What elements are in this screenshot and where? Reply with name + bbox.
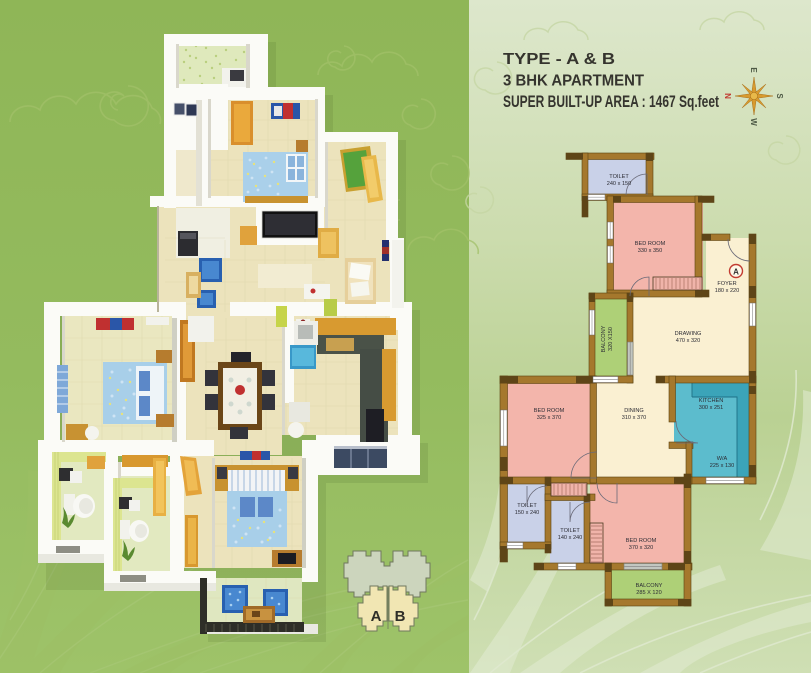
svg-text:FOYER: FOYER (717, 281, 736, 287)
svg-text:KITCHEN: KITCHEN (699, 398, 724, 404)
svg-text:DRAWING: DRAWING (675, 331, 702, 337)
svg-text:W/A: W/A (717, 456, 728, 462)
svg-text:N: N (723, 93, 732, 99)
svg-text:150 x 240: 150 x 240 (515, 510, 540, 516)
svg-text:W: W (749, 118, 758, 126)
svg-text:SUPER BUILT-UP AREA : 1467: SUPER BUILT-UP AREA : 1467 Sq.feet (503, 93, 719, 111)
svg-text:BED ROOM: BED ROOM (635, 241, 666, 247)
svg-text:330 x 350: 330 x 350 (638, 248, 663, 254)
svg-text:BALCONY: BALCONY (636, 583, 663, 589)
svg-text:TYPE - A & B: TYPE - A & B (503, 51, 615, 68)
svg-text:DINING: DINING (624, 408, 644, 414)
svg-text:BALCONY: BALCONY (601, 325, 607, 352)
svg-text:S: S (775, 93, 784, 99)
svg-text:180 x 220: 180 x 220 (715, 288, 740, 294)
svg-text:TOILET: TOILET (609, 174, 629, 180)
svg-text:3 BHK APARTMENT: 3 BHK APARTMENT (503, 73, 645, 90)
svg-text:320 X150: 320 X150 (608, 327, 614, 351)
svg-text:A: A (371, 608, 382, 625)
svg-text:TOILET: TOILET (517, 503, 537, 509)
svg-text:240 x 150: 240 x 150 (607, 181, 632, 187)
svg-text:BED ROOM: BED ROOM (534, 408, 565, 414)
svg-text:325 x 370: 325 x 370 (537, 415, 562, 421)
svg-text:310 x 370: 310 x 370 (622, 415, 647, 421)
svg-text:TOILET: TOILET (560, 528, 580, 534)
svg-text:BED ROOM: BED ROOM (626, 538, 657, 544)
svg-text:225 x 130: 225 x 130 (710, 463, 735, 469)
svg-text:A: A (733, 268, 739, 277)
svg-text:370 x 320: 370 x 320 (629, 545, 654, 551)
svg-text:300 x 251: 300 x 251 (699, 405, 724, 411)
svg-text:B: B (395, 608, 406, 625)
svg-text:285 X 120: 285 X 120 (636, 590, 662, 596)
svg-text:E: E (749, 67, 758, 73)
svg-text:140 x 240: 140 x 240 (558, 535, 583, 541)
svg-text:470 x 320: 470 x 320 (676, 338, 701, 344)
